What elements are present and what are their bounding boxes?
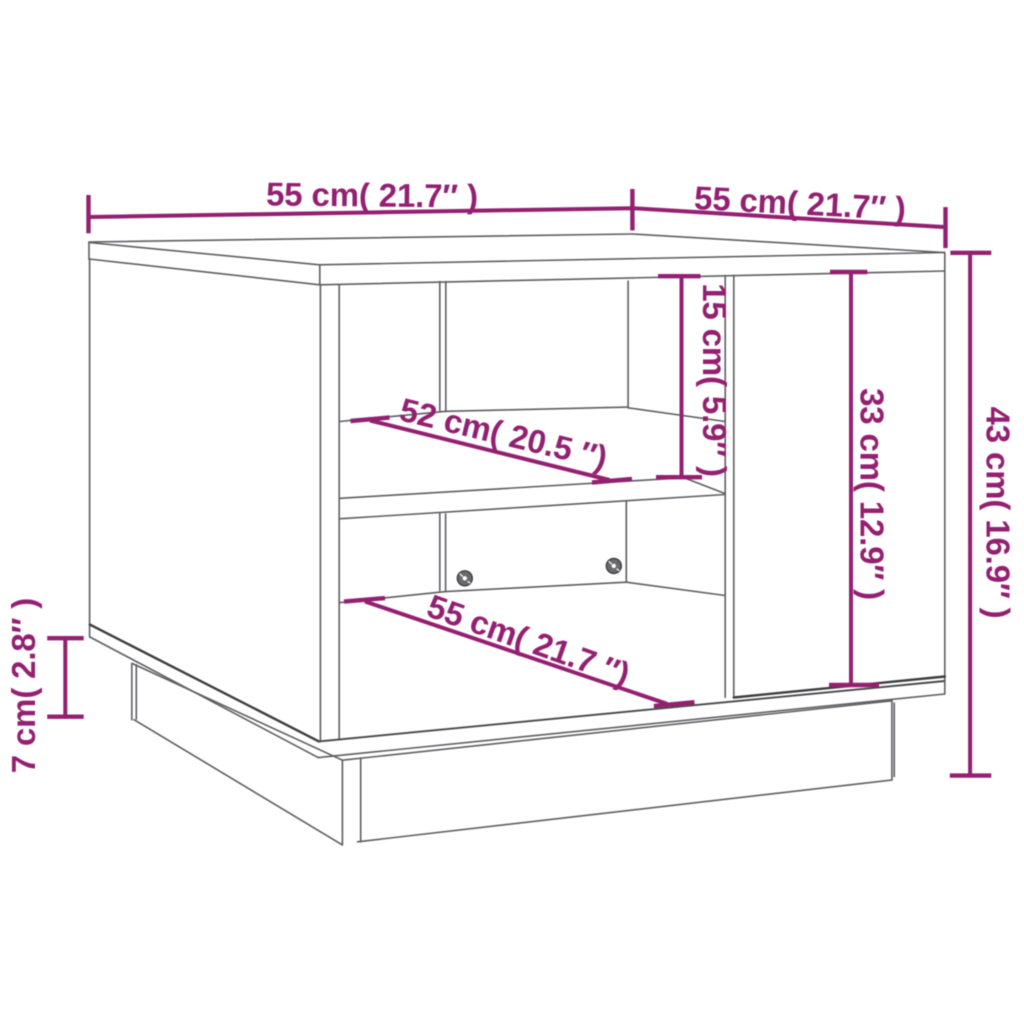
svg-text:15 cm( 5.9″ ): 15 cm( 5.9″ ) <box>696 283 733 477</box>
svg-text:33 cm( 12.9″ ): 33 cm( 12.9″ ) <box>854 388 891 600</box>
svg-text:55 cm( 21.7″ ): 55 cm( 21.7″ ) <box>266 175 478 214</box>
svg-text:55 cm( 21.7 ″): 55 cm( 21.7 ″) <box>423 587 635 693</box>
svg-text:55 cm( 21.7″ ): 55 cm( 21.7″ ) <box>693 179 906 227</box>
svg-text:7 cm( 2.8″ ): 7 cm( 2.8″ ) <box>5 598 42 773</box>
svg-text:52 cm( 20.5 ″): 52 cm( 20.5 ″) <box>396 391 611 476</box>
svg-text:43 cm( 16.9″ ): 43 cm( 16.9″ ) <box>980 407 1017 619</box>
